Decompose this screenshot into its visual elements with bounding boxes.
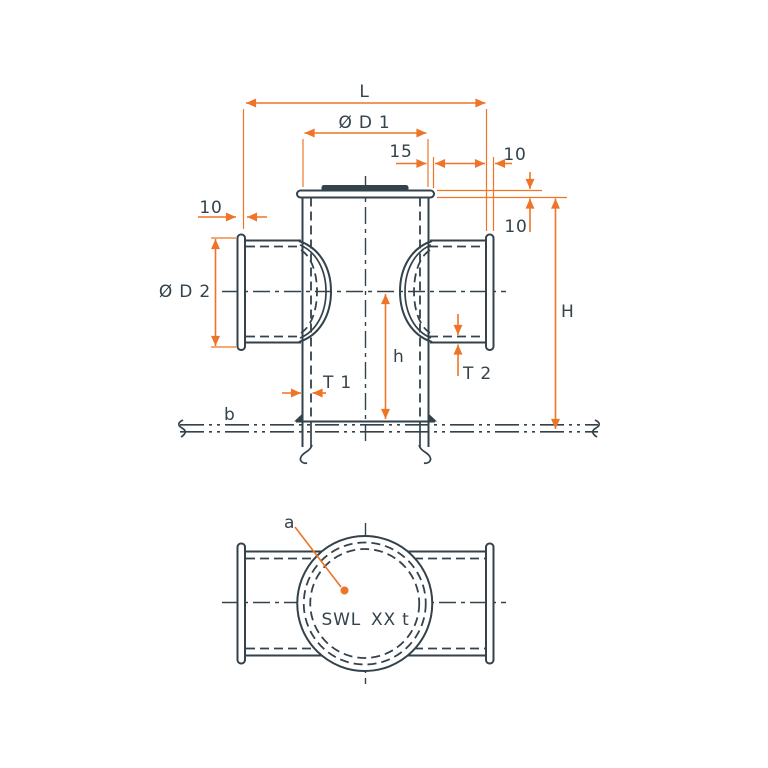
deck-break-right — [593, 420, 600, 437]
dim-label-10-right: 10 — [503, 145, 526, 165]
left-arm-flange — [238, 235, 246, 351]
plan-view: a SWL XX t — [222, 513, 506, 684]
deck-break-left — [179, 420, 186, 437]
dim-label-10-vertical: 10 — [504, 217, 527, 237]
dim-label-10-left: 10 — [199, 198, 222, 218]
right-arm-flange — [486, 235, 494, 351]
plan-left-flange — [238, 544, 246, 664]
dim-label-h: h — [393, 347, 405, 367]
leg-break-right — [419, 445, 431, 463]
bollard-drawing: L Ø D 1 15 10 10 10 Ø D 2 H h T 1 T 2 b … — [0, 0, 768, 768]
leg-break-left — [300, 445, 312, 463]
weld-fillet-right — [429, 414, 438, 422]
dim-label-15: 15 — [389, 142, 412, 162]
bollard-drawing-canvas: L Ø D 1 15 10 10 10 Ø D 2 H h T 1 T 2 b … — [0, 0, 768, 768]
plan-right-flange — [486, 544, 494, 664]
weld-fillet-left — [294, 414, 303, 422]
deck-line-label: b — [224, 405, 236, 425]
center-mark-dot — [341, 587, 349, 595]
dim-label-D1: Ø D 1 — [338, 113, 390, 133]
dim-label-T1: T 1 — [322, 373, 352, 393]
dim-label-D2: Ø D 2 — [159, 282, 211, 302]
dim-label-L: L — [359, 82, 369, 102]
dim-label-H: H — [561, 302, 575, 322]
center-mark-label: a — [284, 513, 295, 533]
top-flange — [297, 191, 434, 198]
front-view — [179, 176, 600, 463]
swl-value: XX t — [371, 610, 410, 630]
swl-label: SWL — [322, 610, 361, 630]
dim-label-T2: T 2 — [462, 364, 492, 384]
